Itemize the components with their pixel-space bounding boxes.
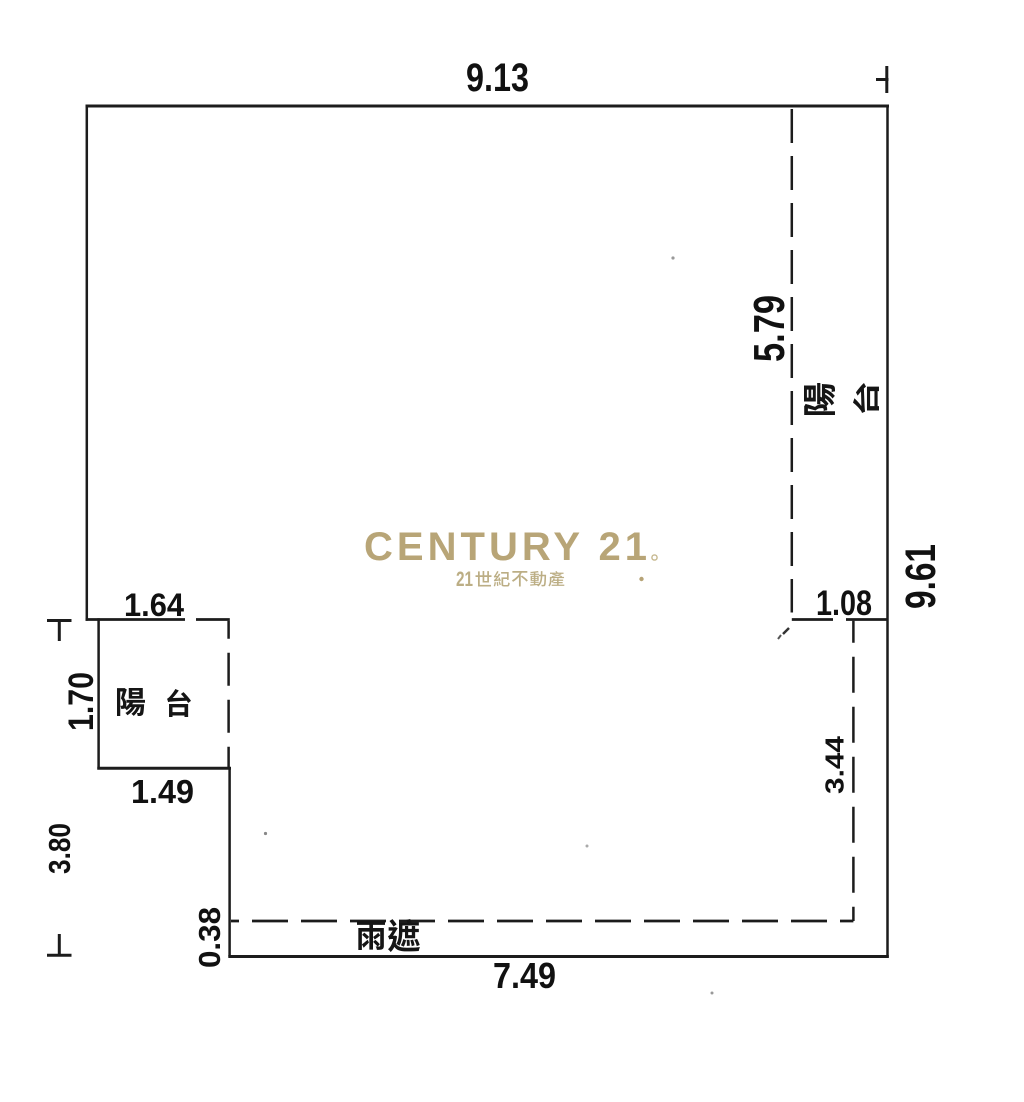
svg-text:9.13: 9.13 [466,56,529,100]
svg-text:3.80: 3.80 [42,823,77,874]
svg-text:9.61: 9.61 [897,544,945,609]
svg-text:0.38: 0.38 [192,907,227,968]
svg-text:3.44: 3.44 [819,735,849,794]
svg-text:1.49: 1.49 [131,773,194,810]
svg-text:21: 21 [456,568,473,591]
svg-text:1.70: 1.70 [62,672,101,731]
svg-text:5.79: 5.79 [745,295,794,362]
svg-text:CENTURY 21: CENTURY 21 [364,525,647,569]
svg-text:1.64: 1.64 [124,587,184,623]
svg-text:7.49: 7.49 [493,955,556,996]
svg-text:1.08: 1.08 [816,584,872,623]
